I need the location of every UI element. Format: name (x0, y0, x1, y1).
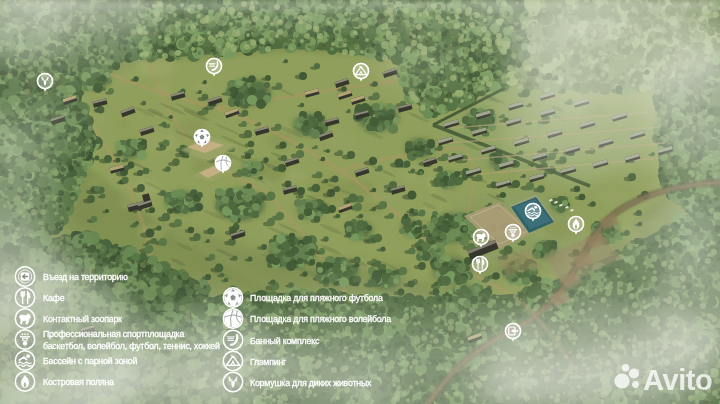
svg-text:Avito: Avito (643, 364, 712, 396)
svg-text:Площадка для пляжного волейбол: Площадка для пляжного волейбола (250, 314, 391, 324)
svg-text:Глэмпинг: Глэмпинг (250, 357, 286, 367)
svg-text:Площадка для пляжного футбола: Площадка для пляжного футбола (250, 293, 383, 303)
svg-text:баскетбол, волейбол, футбол, т: баскетбол, волейбол, футбол, теннис, хок… (43, 341, 220, 351)
svg-text:Профессиональная спортплощадка: Профессиональная спортплощадка (43, 329, 184, 339)
svg-text:Кормушка для диких животных: Кормушка для диких животных (250, 378, 372, 388)
svg-text:Кафе: Кафе (43, 293, 65, 303)
svg-text:Въезд на территорию: Въезд на территорию (43, 272, 128, 282)
svg-text:Контактный зоопарк: Контактный зоопарк (43, 314, 122, 324)
svg-text:Костровая поляна: Костровая поляна (43, 377, 114, 387)
svg-text:Банный комплекс: Банный комплекс (250, 336, 320, 346)
svg-text:Бассейн с парной зоной: Бассейн с парной зоной (43, 356, 137, 366)
